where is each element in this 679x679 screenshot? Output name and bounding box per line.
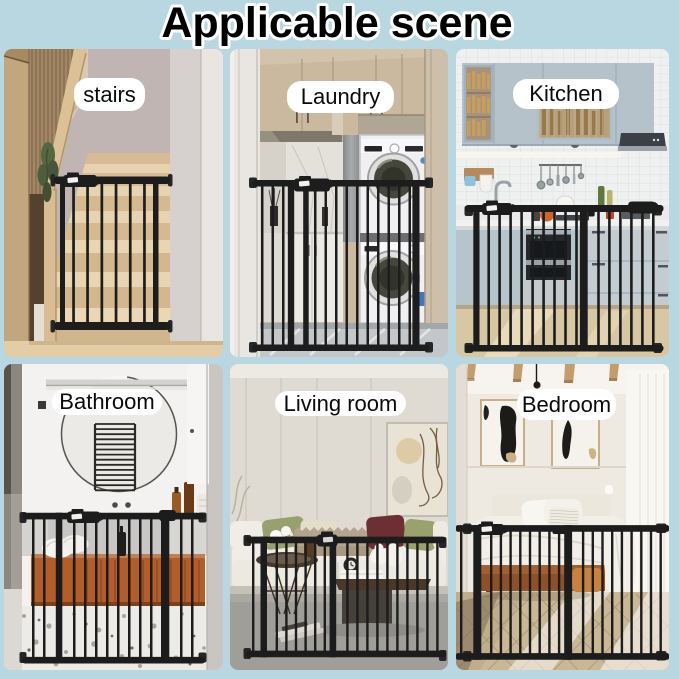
svg-text:Applicable scene: Applicable scene xyxy=(161,0,512,47)
